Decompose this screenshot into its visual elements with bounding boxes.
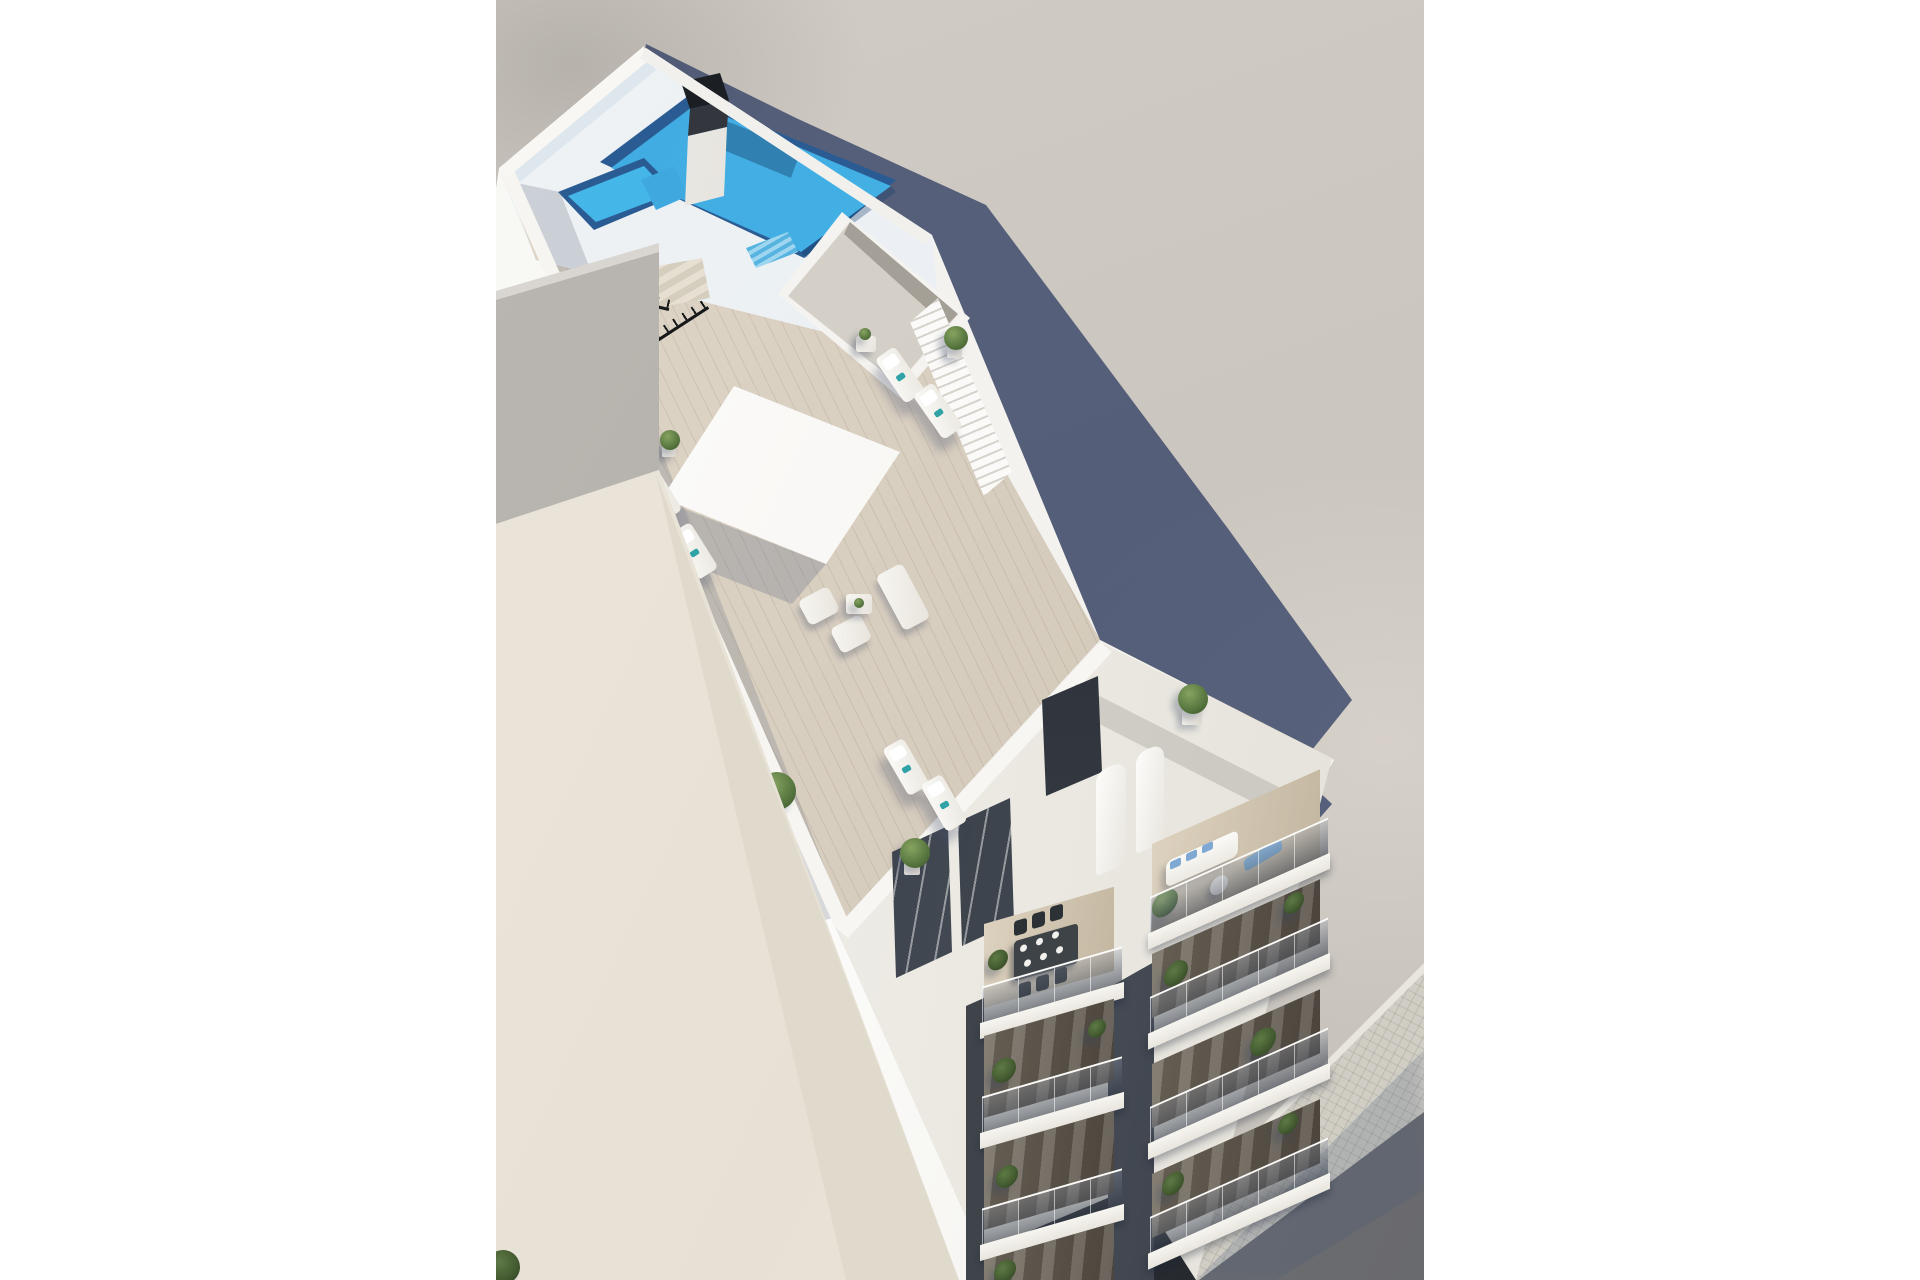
balcony-plant — [994, 1257, 1016, 1280]
balcony-divider-fin-a — [1096, 759, 1126, 876]
dining-chair — [1032, 911, 1045, 930]
balcony-plant — [1162, 1168, 1184, 1200]
coffee-table-plant — [854, 598, 864, 608]
balcony-plant — [1088, 1017, 1106, 1040]
balcony-plant — [996, 1162, 1018, 1190]
aerial-render-photo — [496, 0, 1424, 1280]
render-canvas — [0, 0, 1920, 1280]
dining-chair — [1050, 903, 1063, 922]
balcony-divider-fin-b — [1136, 742, 1164, 854]
roof-plant — [1178, 684, 1208, 714]
table-plant — [859, 328, 871, 340]
balcony-plant — [988, 947, 1008, 973]
balcony-plant — [992, 1055, 1016, 1086]
balcony-plant — [1284, 888, 1304, 917]
roof-plant — [944, 326, 968, 350]
dining-chair — [1014, 918, 1027, 937]
roof-plant — [660, 430, 680, 450]
roof-plant — [900, 838, 930, 868]
